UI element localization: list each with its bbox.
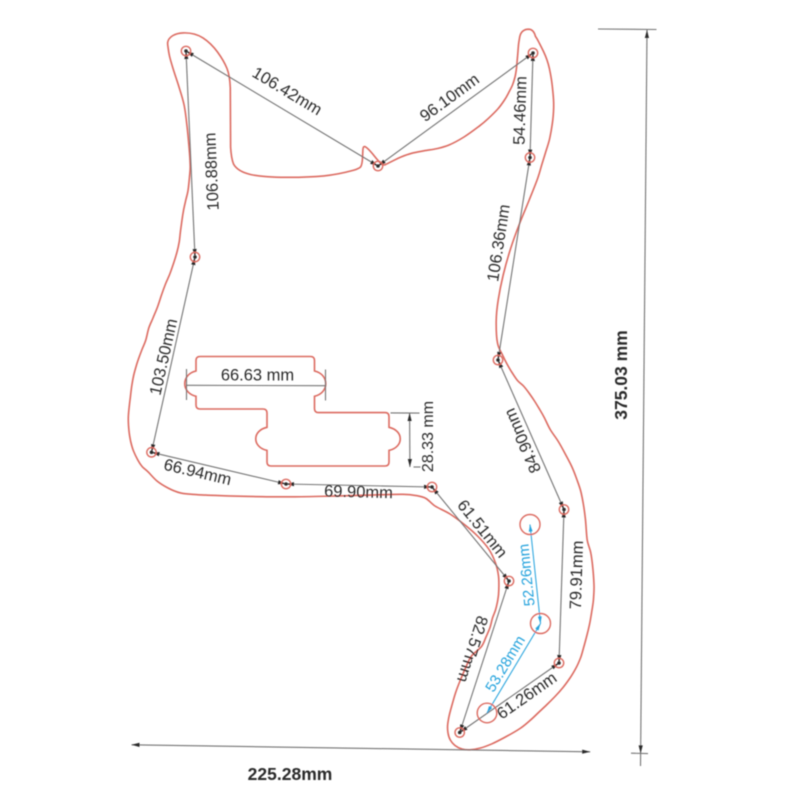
- svg-text:54.46mm: 54.46mm: [511, 76, 531, 145]
- svg-text:106.88mm: 106.88mm: [201, 132, 222, 211]
- svg-text:375.03 mm: 375.03 mm: [611, 330, 631, 420]
- svg-text:79.91mm: 79.91mm: [567, 540, 587, 609]
- svg-text:28.33 mm: 28.33 mm: [420, 401, 437, 472]
- svg-text:66.63 mm: 66.63 mm: [221, 367, 294, 385]
- svg-text:225.28mm: 225.28mm: [248, 764, 333, 784]
- svg-text:69.90mm: 69.90mm: [324, 482, 393, 502]
